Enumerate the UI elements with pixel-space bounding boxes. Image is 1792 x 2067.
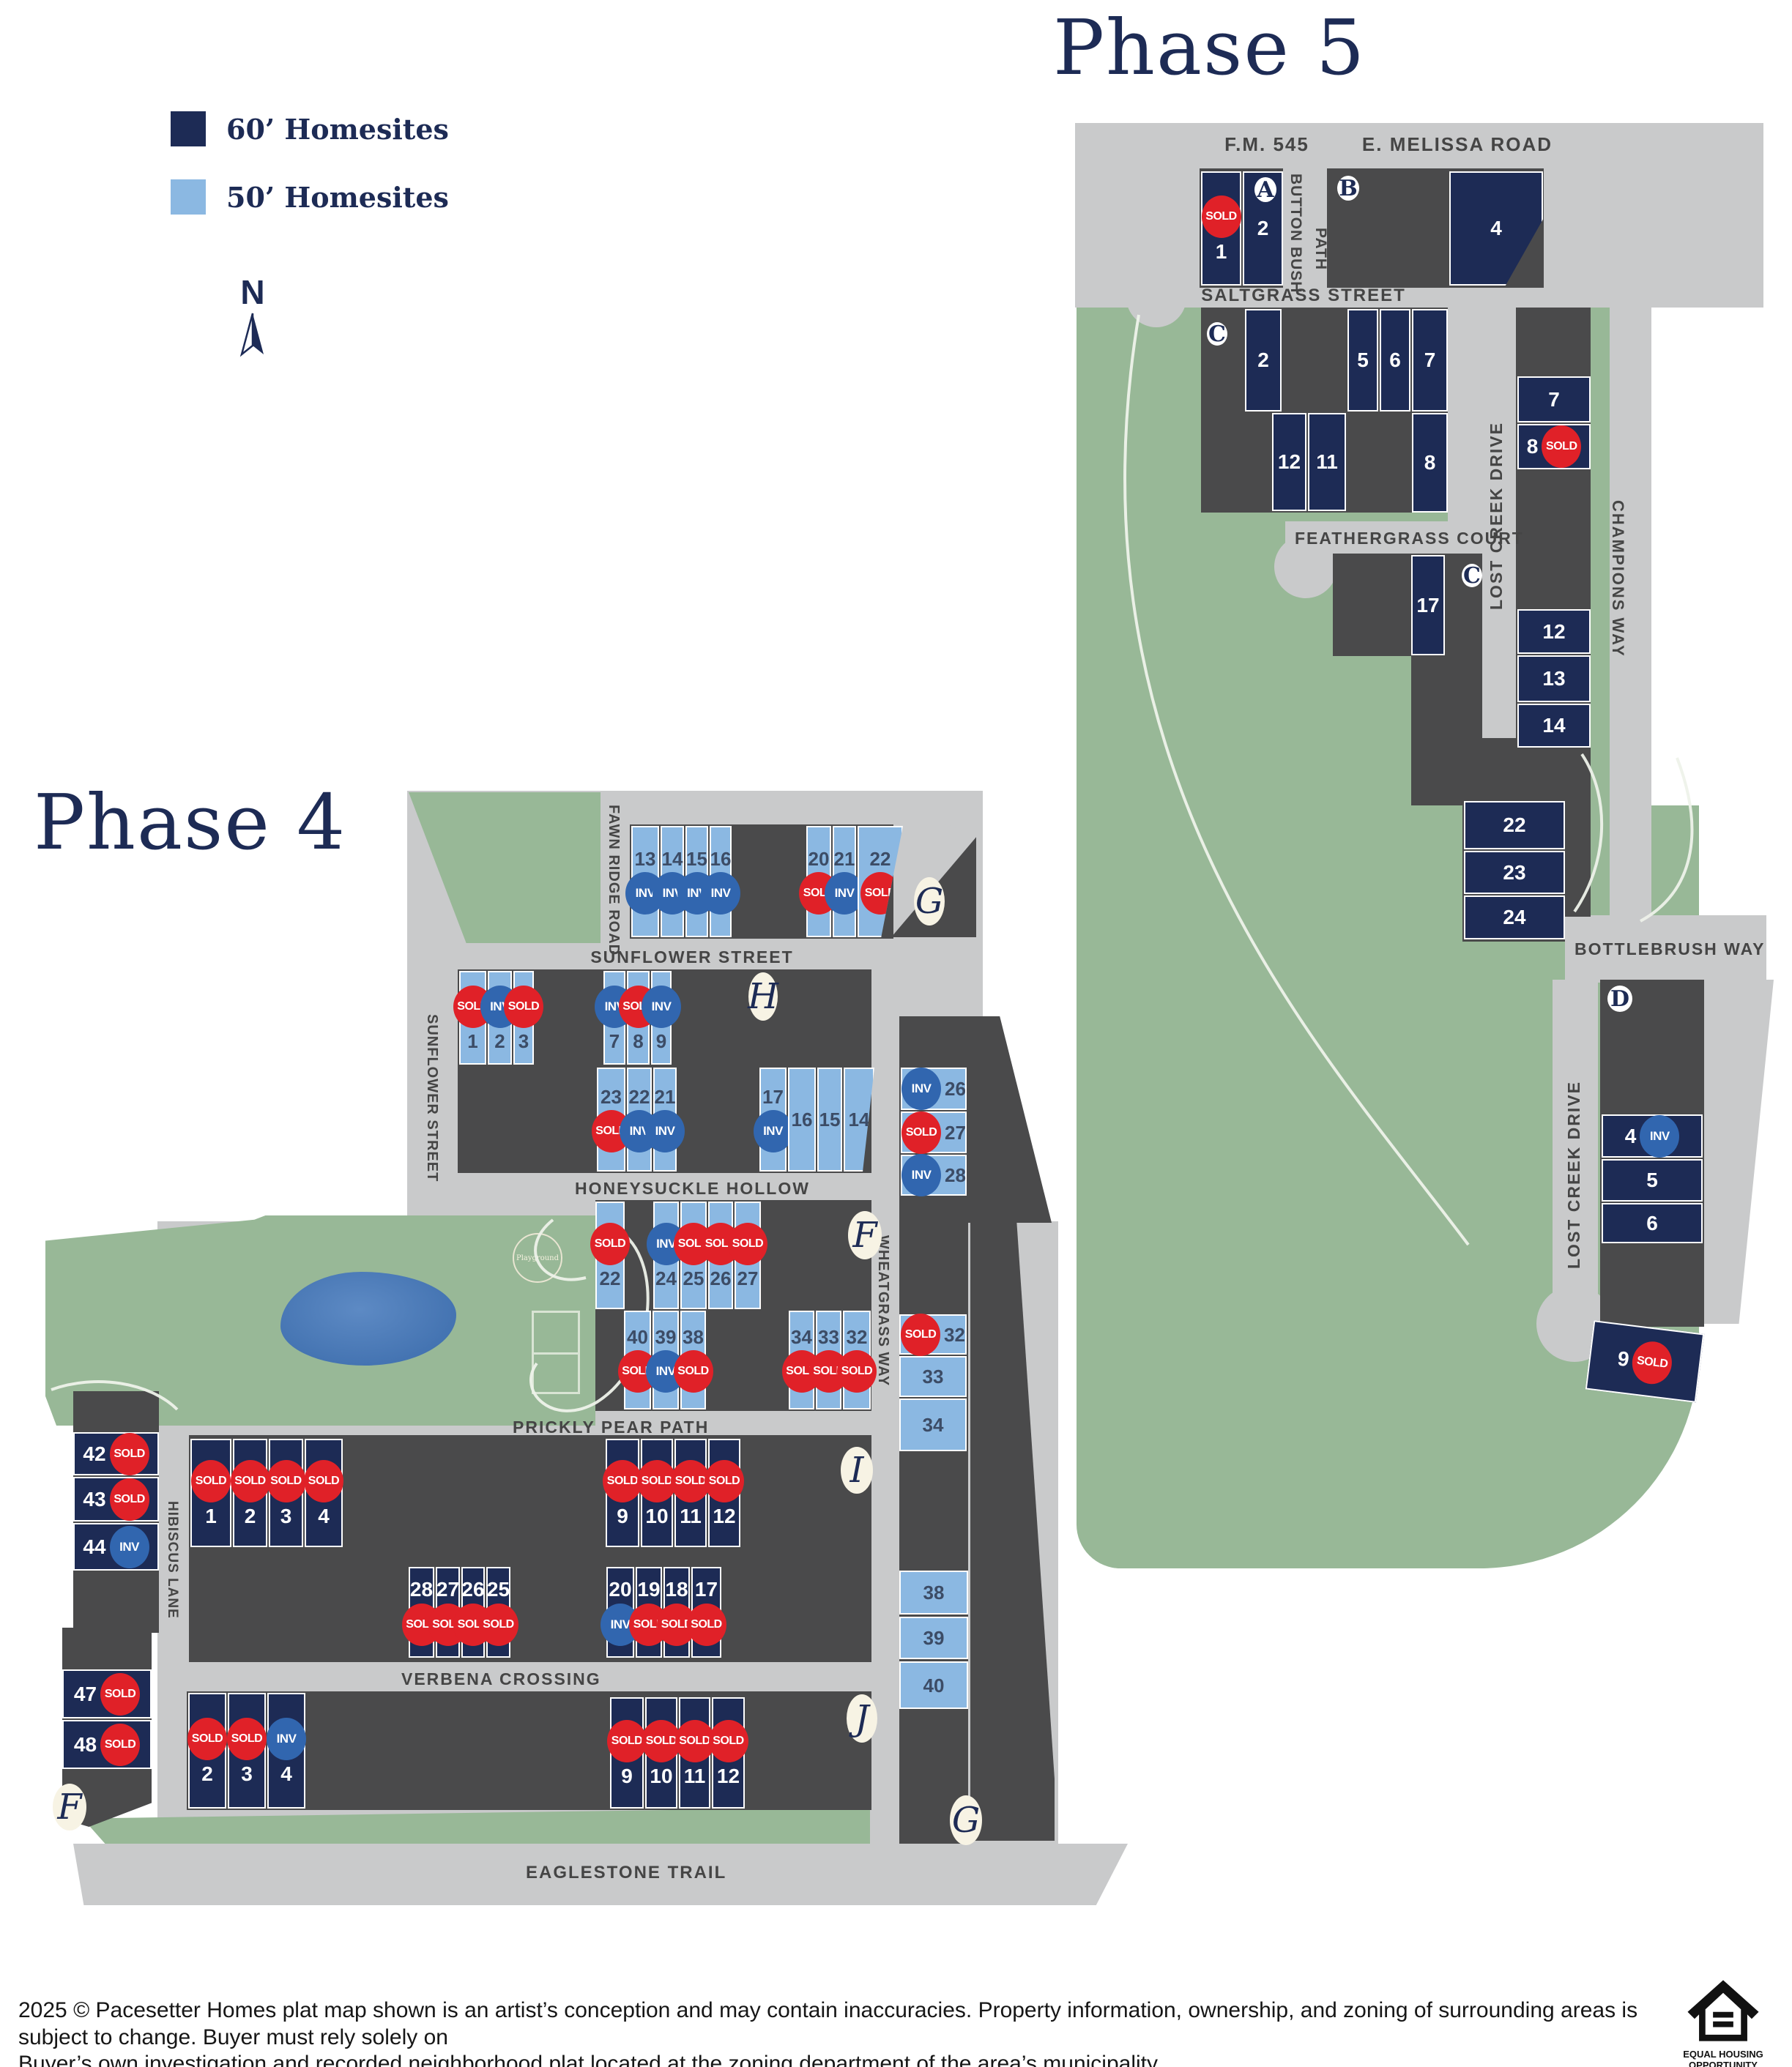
status-sold-badge: SOLD — [704, 1460, 744, 1502]
status-sold-badge: SOLD — [603, 1460, 642, 1502]
lot-phase5-4: 4INV — [1602, 1114, 1703, 1158]
status-sold-badge: SOLD — [100, 1673, 140, 1716]
lot-number: 16 — [710, 849, 732, 868]
legend-label-50: 50’ Homesites — [226, 181, 449, 214]
lot-phase4-21: 21INV — [653, 1068, 677, 1172]
lot-phase4-12: SOLD12 — [708, 1439, 740, 1547]
lot-number: 28 — [945, 1166, 966, 1185]
basketball-court-icon — [532, 1311, 580, 1394]
legend-swatch-50-icon — [171, 179, 206, 215]
lot-phase4-33: 33SOLD — [816, 1311, 841, 1409]
playground-label: Playground — [516, 1254, 559, 1262]
status-sold-badge: SOLD — [901, 1111, 941, 1154]
road-surface — [1704, 980, 1774, 1324]
status-sold-badge: SOLD — [1202, 195, 1241, 238]
lot-phase4-22: SOLD22 — [595, 1202, 625, 1309]
status-sold-badge: SOLD — [1542, 425, 1581, 468]
lot-number: 10 — [650, 1766, 672, 1787]
lot-phase5-23: 23 — [1464, 851, 1565, 894]
lot-number: 11 — [1316, 452, 1338, 472]
lot-phase4-11: SOLD11 — [679, 1697, 710, 1809]
lot-phase5-12: 12 — [1272, 413, 1306, 511]
eho-label-line2: OPPORTUNITY — [1668, 2060, 1778, 2067]
street-verbena: VERBENA CROSSING — [401, 1669, 577, 1689]
status-sold-badge: SOLD — [901, 1314, 940, 1356]
lot-phase4-25: 25SOLD — [486, 1567, 510, 1658]
lot-number: 38 — [683, 1327, 704, 1347]
lot-number: 9 — [621, 1766, 633, 1787]
street-lost-creek-lower: LOST CREEK DRIVE — [1564, 1047, 1584, 1303]
area-marker-J: J — [847, 1694, 877, 1743]
status-sold-badge: SOLD — [709, 1720, 748, 1762]
status-inv-badge: INV — [267, 1718, 306, 1760]
lot-number: 3 — [241, 1764, 253, 1784]
status-sold-badge: SOLD — [607, 1720, 647, 1762]
lot-phase4-16: 16INV — [710, 826, 732, 937]
lot-phase5-7: 7 — [1412, 309, 1448, 411]
lot-phase5-14: 14 — [1517, 704, 1591, 748]
area-marker-B: B — [1337, 176, 1359, 201]
lot-phase5-17: 17 — [1411, 555, 1445, 655]
status-sold-badge: SOLD — [687, 1604, 726, 1646]
disclaimer-line2: Buyer’s own investigation and recorded n… — [18, 2051, 1673, 2067]
lot-number: 18 — [665, 1579, 688, 1600]
lot-number: 25 — [683, 1269, 704, 1288]
lot-number: 34 — [791, 1327, 812, 1347]
north-label: N — [236, 272, 269, 312]
status-inv-badge: INV — [110, 1526, 149, 1568]
status-sold-badge: SOLD — [267, 1460, 306, 1502]
street-fawn-ridge: FAWN RIDGE ROAD — [605, 800, 622, 961]
lot-phase4-17: 17INV — [759, 1068, 787, 1172]
lot-number: 14 — [849, 1110, 870, 1129]
lot-number: 28 — [410, 1579, 433, 1600]
residential-block — [1333, 554, 1482, 656]
lot-number: 38 — [923, 1583, 945, 1602]
lot-phase4-27: SOLD27 — [735, 1202, 761, 1309]
lot-number: 9 — [617, 1506, 628, 1527]
lot-phase4-43: 43SOLD — [73, 1477, 159, 1522]
street-sunflower-v: SUNFLOWER STREET — [423, 981, 440, 1215]
lot-phase4-19: 19SOLD — [636, 1567, 662, 1658]
lot-phase5-8: 8 — [1412, 413, 1448, 513]
lot-number: 12 — [1278, 452, 1301, 472]
lot-phase4-1: SOLD1 — [190, 1439, 231, 1547]
lot-number: 15 — [686, 849, 707, 868]
disclaimer-line1: 2025 © Pacesetter Homes plat map shown i… — [18, 1997, 1673, 2051]
lot-number: 9 — [1616, 1348, 1630, 1370]
lot-phase4-44: 44INV — [73, 1523, 159, 1571]
lot-number: 13 — [635, 849, 656, 868]
lot-number: 27 — [436, 1579, 459, 1600]
lot-phase4-3: SOLD3 — [513, 971, 534, 1065]
lot-number: 26 — [945, 1079, 966, 1098]
lot-number: 20 — [609, 1579, 631, 1600]
lot-phase4-20: 20INV — [606, 1567, 634, 1658]
lot-phase4-18: 18SOLD — [663, 1567, 690, 1658]
lot-number: 11 — [680, 1506, 702, 1527]
status-sold-badge: SOLD — [191, 1460, 231, 1502]
lot-number: 15 — [819, 1110, 841, 1129]
north-arrow-icon — [236, 312, 269, 357]
lot-phase4-9: SOLD9 — [610, 1697, 644, 1809]
lot-number: 2 — [245, 1506, 256, 1527]
lot-number: 3 — [518, 1032, 529, 1051]
lot-phase4-1: SOLD1 — [459, 971, 486, 1065]
lot-phase4-26: INV26 — [901, 1068, 967, 1110]
lot-phase5-6: 6 — [1602, 1203, 1703, 1243]
status-sold-badge: SOLD — [187, 1718, 227, 1760]
phase5-title: Phase 5 — [1053, 3, 1366, 92]
lot-number: 32 — [847, 1327, 868, 1347]
green-space — [1591, 308, 1610, 915]
lot-phase4-15: 15 — [817, 1068, 842, 1172]
lot-number: 39 — [655, 1327, 677, 1347]
lot-number: 20 — [808, 849, 830, 868]
lot-number: 8 — [633, 1032, 643, 1051]
lot-phase5-8: 8SOLD — [1517, 424, 1591, 469]
lot-phase5-5: 5 — [1347, 309, 1378, 411]
status-sold-badge: SOLD — [728, 1223, 767, 1265]
lot-phase4-34: 34 — [899, 1399, 967, 1451]
street-eaglestone: EAGLESTONE TRAIL — [526, 1863, 720, 1883]
lot-phase4-11: SOLD11 — [674, 1439, 707, 1547]
lot-number: 32 — [944, 1325, 965, 1344]
lot-phase5-24: 24 — [1464, 895, 1565, 939]
lot-number: 4 — [1490, 218, 1502, 239]
lot-number: 17 — [762, 1087, 784, 1106]
residential-block — [965, 1016, 1052, 1223]
lot-number: 48 — [74, 1735, 97, 1755]
lot-number: 40 — [923, 1676, 945, 1695]
status-sold-badge: SOLD — [674, 1350, 713, 1393]
lot-number: 5 — [1646, 1170, 1658, 1191]
lot-number: 14 — [662, 849, 683, 868]
lot-number: 2 — [1257, 350, 1269, 370]
road-surface — [1126, 267, 1186, 327]
lot-phase4-9: INV9 — [651, 971, 672, 1065]
lot-phase4-2: SOLD2 — [188, 1693, 226, 1809]
status-sold-badge: SOLD — [837, 1350, 877, 1393]
lot-phase4-23: 23SOLD — [597, 1068, 625, 1172]
lot-number: 44 — [83, 1537, 105, 1557]
status-sold-badge: SOLD — [227, 1718, 267, 1760]
lot-number: 23 — [601, 1087, 622, 1106]
lot-number: 22 — [870, 849, 891, 868]
lot-number: 2 — [1257, 218, 1269, 239]
lot-phase4-42: 42SOLD — [73, 1432, 159, 1475]
disclaimer: 2025 © Pacesetter Homes plat map shown i… — [18, 1997, 1673, 2067]
lot-number: 26 — [710, 1269, 732, 1288]
lot-phase5-2: 2 — [1245, 309, 1282, 411]
legend-item-60: 60’ Homesites — [171, 111, 449, 146]
lot-phase4-39: 39 — [899, 1617, 968, 1659]
lot-number: 5 — [1357, 350, 1369, 370]
area-marker-C: C — [1462, 564, 1482, 587]
lot-number: 14 — [1542, 715, 1565, 736]
playground-area: Playground — [513, 1233, 562, 1283]
lot-number: 12 — [713, 1506, 735, 1527]
eho-label-line1: EQUAL HOUSING — [1668, 2049, 1778, 2060]
street-sunflower-h: SUNFLOWER STREET — [590, 947, 795, 967]
status-sold-badge: SOLD — [504, 986, 543, 1028]
north-compass: N — [236, 272, 269, 361]
lot-number: 22 — [600, 1269, 621, 1288]
status-sold-badge: SOLD — [1630, 1339, 1675, 1386]
lot-phase4-28: 28SOLD — [409, 1567, 434, 1658]
status-inv-badge: INV — [701, 872, 740, 915]
street-path: PATH — [1312, 209, 1329, 289]
lot-phase5-5: 5 — [1602, 1159, 1703, 1202]
phase4-title: Phase 4 — [34, 778, 346, 867]
area-marker-A: A — [1254, 177, 1276, 202]
lot-number: 42 — [83, 1444, 105, 1464]
lot-phase4-24: INV24 — [653, 1202, 679, 1309]
lot-number: 3 — [280, 1506, 292, 1527]
equal-housing-logo: EQUAL HOUSING OPPORTUNITY — [1668, 1977, 1778, 2067]
lot-number: 39 — [923, 1628, 945, 1647]
equal-housing-house-icon — [1685, 1977, 1761, 2044]
status-sold-badge: SOLD — [479, 1604, 518, 1646]
lot-number: 4 — [1625, 1126, 1637, 1147]
lot-number: 8 — [1527, 436, 1539, 457]
lot-number: 8 — [1424, 452, 1436, 473]
area-marker-I: I — [841, 1447, 873, 1494]
lot-phase4-32: 32SOLD — [843, 1311, 871, 1409]
lot-phase4-40: 40SOLD — [624, 1311, 651, 1409]
street-fm-545: F.M. 545 — [1201, 133, 1333, 156]
lot-phase4-32: SOLD32 — [899, 1314, 967, 1355]
status-inv-badge: INV — [754, 1110, 793, 1152]
area-marker-F: F — [53, 1784, 86, 1830]
street-e-melissa-road: E. MELISSA ROAD — [1340, 133, 1574, 156]
lot-phase4-2: SOLD2 — [233, 1439, 267, 1547]
status-sold-badge: SOLD — [231, 1460, 270, 1502]
lot-number: 27 — [945, 1123, 966, 1142]
lot-phase4-28: INV28 — [901, 1155, 967, 1196]
street-prickly-pear: PRICKLY PEAR PATH — [513, 1418, 688, 1437]
status-sold-badge: SOLD — [100, 1724, 140, 1766]
lot-number: 1 — [467, 1032, 477, 1051]
status-sold-badge: SOLD — [110, 1433, 149, 1475]
lot-number: 11 — [684, 1766, 706, 1787]
lot-number: 7 — [1548, 390, 1560, 410]
lot-number: 24 — [1503, 907, 1525, 928]
street-feathergrass: FEATHERGRASS COURT — [1295, 529, 1471, 548]
status-sold-badge: SOLD — [590, 1223, 630, 1265]
lot-number: 40 — [627, 1327, 648, 1347]
lot-phase4-25: SOLD25 — [680, 1202, 707, 1309]
lot-number: 33 — [818, 1327, 839, 1347]
street-hibiscus: HIBISCUS LANE — [164, 1486, 180, 1633]
legend-item-50: 50’ Homesites — [171, 179, 449, 215]
street-honeysuckle: HONEYSUCKLE HOLLOW — [575, 1179, 791, 1199]
lot-number: 2 — [201, 1764, 213, 1784]
lot-number: 4 — [318, 1506, 330, 1527]
lot-phase4-40: 40 — [899, 1661, 968, 1709]
lot-phase4-4: SOLD4 — [305, 1439, 343, 1547]
lot-number: 24 — [655, 1269, 677, 1288]
lot-phase4-39: 39INV — [653, 1311, 679, 1409]
status-sold-badge: SOLD — [110, 1478, 149, 1521]
lot-phase4-12: SOLD12 — [712, 1697, 745, 1809]
lot-number: 22 — [1503, 815, 1525, 835]
lot-number: 16 — [792, 1110, 813, 1129]
status-inv-badge: INV — [1640, 1115, 1679, 1158]
lot-phase5-12: 12 — [1517, 609, 1591, 654]
lot-number: 21 — [655, 1087, 676, 1106]
street-bottlebrush: BOTTLEBRUSH WAY — [1574, 939, 1750, 959]
lot-number: 6 — [1389, 350, 1401, 370]
lot-phase4-10: SOLD10 — [645, 1697, 677, 1809]
lot-number: 25 — [487, 1579, 510, 1600]
lot-phase4-3: SOLD3 — [269, 1439, 303, 1547]
street-lost-creek-upper: LOST CREEK DRIVE — [1487, 388, 1506, 644]
lot-phase4-21: 21INV — [833, 826, 856, 937]
lot-number: 26 — [461, 1579, 484, 1600]
lot-phase5-13: 13 — [1517, 655, 1591, 702]
area-marker-G: G — [950, 1795, 982, 1845]
lot-number: 13 — [1542, 668, 1565, 689]
area-marker-G: G — [914, 877, 945, 926]
lot-phase4-33: 33 — [899, 1356, 967, 1397]
lot-number: 22 — [629, 1087, 650, 1106]
lot-phase4-38: 38SOLD — [680, 1311, 706, 1409]
lot-phase4-26: SOLD26 — [708, 1202, 733, 1309]
lot-phase4-16: 16 — [788, 1068, 816, 1172]
lot-phase4-3: SOLD3 — [228, 1693, 266, 1809]
lot-phase4-34: 34SOLD — [789, 1311, 814, 1409]
area-marker-H: H — [748, 972, 778, 1021]
status-inv-badge: INV — [901, 1154, 941, 1196]
lot-number: 7 — [1424, 350, 1436, 370]
lot-phase4-48: 48SOLD — [62, 1720, 152, 1769]
lot-phase5-11: 11 — [1308, 413, 1346, 511]
lot-phase5-9: 9SOLD — [1585, 1320, 1704, 1403]
lot-number: 27 — [737, 1269, 759, 1288]
plat-map-canvas: Phase 5 Phase 4 60’ Homesites 50’ Homesi… — [0, 0, 1792, 2067]
lot-phase4-17: 17SOLD — [691, 1567, 721, 1658]
lot-number: 43 — [83, 1489, 105, 1510]
lot-number: 21 — [834, 849, 855, 868]
lot-phase5-7: 7 — [1517, 376, 1591, 422]
lot-phase4-10: SOLD10 — [641, 1439, 673, 1547]
lot-number: 47 — [74, 1684, 97, 1705]
lot-phase5-1: SOLD1 — [1201, 171, 1241, 286]
area-marker-D: D — [1607, 986, 1632, 1012]
lot-number: 2 — [494, 1032, 505, 1051]
lot-number: 17 — [695, 1579, 718, 1600]
lot-number: 7 — [609, 1032, 620, 1051]
lot-number: 10 — [645, 1506, 668, 1527]
lot-number: 12 — [717, 1766, 740, 1787]
lot-phase4-27: SOLD27 — [901, 1111, 967, 1153]
lot-number: 33 — [923, 1367, 944, 1386]
street-champions-way: CHAMPIONS WAY — [1608, 425, 1627, 732]
lot-number: 17 — [1416, 595, 1439, 616]
status-inv-badge: INV — [901, 1068, 941, 1110]
lot-number: 6 — [1646, 1213, 1658, 1234]
lot-number: 12 — [1542, 622, 1565, 642]
status-sold-badge: SOLD — [304, 1460, 343, 1502]
lot-phase4-26: 26SOLD — [461, 1567, 485, 1658]
lot-phase5-22: 22 — [1464, 801, 1565, 849]
lot-number: 4 — [280, 1764, 292, 1784]
status-inv-badge: INV — [642, 986, 681, 1028]
lot-number: 19 — [637, 1579, 660, 1600]
lot-phase5-6: 6 — [1380, 309, 1410, 411]
lot-number: 23 — [1503, 863, 1525, 883]
legend-label-60: 60’ Homesites — [226, 113, 449, 146]
lot-phase4-4: INV4 — [267, 1693, 305, 1809]
lot-phase4-47: 47SOLD — [62, 1669, 152, 1718]
status-inv-badge: INV — [645, 1110, 685, 1152]
lot-number: 1 — [1216, 242, 1227, 262]
lot-number: 9 — [656, 1032, 666, 1051]
lot-number: 1 — [205, 1506, 217, 1527]
lot-phase4-38: 38 — [899, 1571, 968, 1615]
street-button-bush: BUTTON BUSH — [1287, 171, 1304, 296]
lot-phase4-9: SOLD9 — [606, 1439, 639, 1547]
lot-number: 34 — [923, 1415, 944, 1434]
area-marker-C: C — [1207, 322, 1227, 346]
area-marker-F: F — [848, 1211, 882, 1259]
legend-swatch-60-icon — [171, 111, 206, 146]
